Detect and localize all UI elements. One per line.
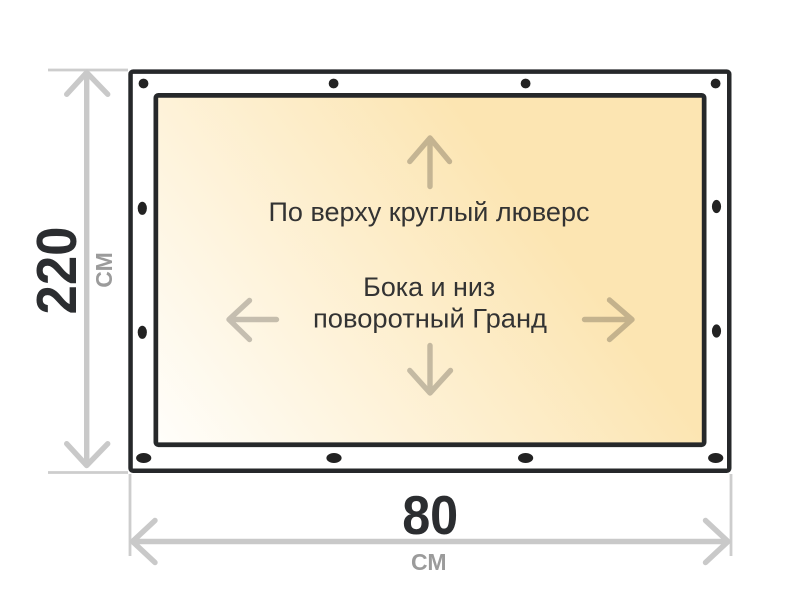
svg-text:поворотный Гранд: поворотный Гранд bbox=[313, 303, 548, 333]
svg-text:80: 80 bbox=[402, 485, 458, 546]
svg-text:Бока и низ: Бока и низ bbox=[363, 272, 495, 302]
svg-text:СМ: СМ bbox=[91, 252, 117, 287]
svg-text:По верху круглый люверс: По верху круглый люверс bbox=[269, 197, 590, 227]
svg-text:220: 220 bbox=[25, 227, 89, 315]
svg-text:СМ: СМ bbox=[411, 549, 446, 575]
